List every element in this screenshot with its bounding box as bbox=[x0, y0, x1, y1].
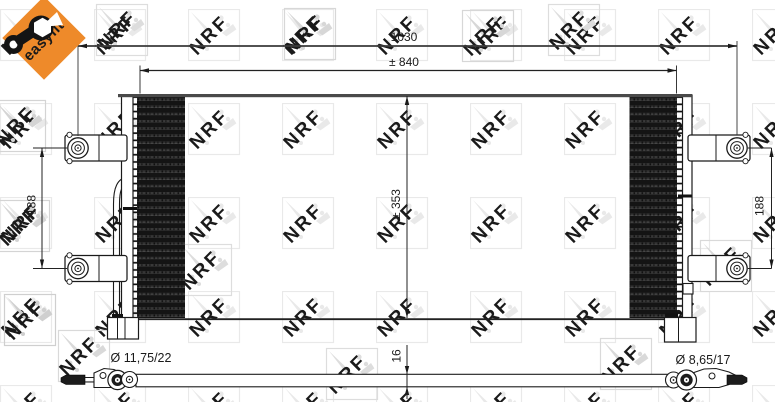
top-plate bbox=[118, 94, 692, 97]
core-fins-right bbox=[630, 96, 678, 319]
dim-label-core-height: ± 353 bbox=[389, 189, 403, 219]
bracket-bottom-right bbox=[688, 253, 750, 285]
dim-label-profile-thickness: 16 bbox=[390, 349, 404, 363]
right-foot bbox=[665, 314, 697, 343]
right-tank-stub bbox=[678, 195, 692, 198]
dim-label-overall-width: 1030 bbox=[391, 30, 418, 44]
bracket-top-left bbox=[65, 132, 127, 164]
left-foot bbox=[108, 314, 139, 339]
profile-bar bbox=[136, 374, 670, 387]
dim-label-left-mount-pitch: 188 bbox=[25, 195, 39, 215]
dim-label-right-mount-pitch: 188 bbox=[753, 196, 767, 216]
right-connection-label: Ø 8,65/17 bbox=[676, 353, 731, 367]
bracket-bottom-left bbox=[65, 253, 127, 285]
dim-label-core-width: ± 840 bbox=[389, 55, 419, 69]
left-tank-stub bbox=[123, 207, 137, 210]
drawing-canvas: NRF bbox=[0, 0, 775, 402]
core-fins-left bbox=[137, 96, 185, 319]
right-tank-tab bbox=[683, 284, 693, 295]
bracket-top-right bbox=[688, 132, 750, 164]
left-connection-label: Ø 11,75/22 bbox=[111, 351, 172, 365]
condenser-technical-drawing: NRF bbox=[0, 0, 775, 402]
